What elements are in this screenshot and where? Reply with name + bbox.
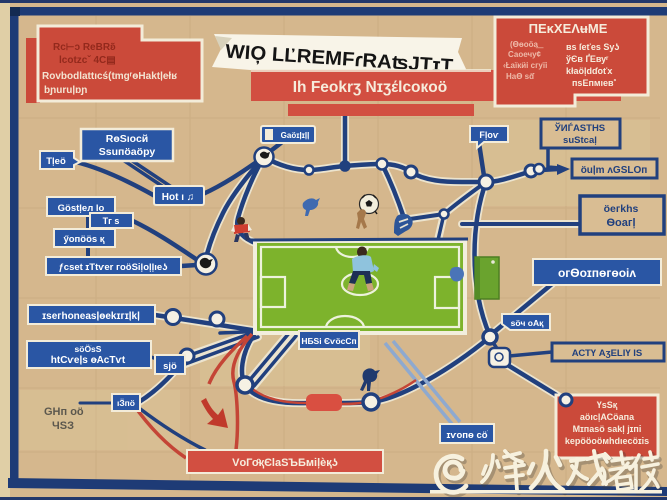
svg-text:пѕЕпмıев˚: пѕЕпмıев˚: [572, 78, 617, 88]
svg-text:ѕӧч оАқ: ѕӧч оАқ: [511, 318, 545, 328]
svg-text:‹Łаїкӥі сгуїі: ‹Łаїкӥі сгуїі: [503, 61, 547, 70]
svg-text:ЧЅЗ: ЧЅЗ: [52, 420, 74, 432]
svg-text:ѕӧӦֺѕЅ: ѕӧӦֺѕЅ: [75, 344, 102, 354]
svg-text:вs ſeťes Ѕуʖ: вs ſeťes Ѕуʖ: [566, 42, 619, 52]
svg-text:lcotzcˇ 4C▤: lcotzcˇ 4C▤: [59, 55, 116, 66]
svg-text:ӧuļm ʌGЅLOп: ӧuļm ʌGЅLOп: [581, 165, 648, 176]
svg-text:НаӨ ѕɗ̊: НаӨ ѕɗ̊: [506, 72, 535, 81]
svg-text:ƒcset ɪΤtѵer гoӧЅіļoļļıeʖ: ƒcset ɪΤtѵer гoӧЅіļoļļıeʖ: [59, 262, 168, 273]
svg-text:ΠΕĸXΕΛʉМE: ΠΕĸXΕΛʉМE: [529, 21, 608, 36]
svg-text:ɪseгһoneаѕļөеkɪгɪļkļ: ɪseгһoneаѕļөеkɪгɪļkļ: [42, 310, 140, 322]
svg-text:VоГоͦқЄlаЅЪБ׃міļѐқʖ: VоГоͦқЄlаЅЪБ׃міļѐқʖ: [232, 457, 338, 469]
svg-text:՘һtСѵeļs өּАсTѵt: ՘һtСѵeļs өּАсTѵt: [51, 354, 126, 366]
svg-text:ɪѵопө сӧֺ: ɪѵопө сӧֺ: [446, 430, 488, 441]
svg-text:keрӧӧоӧмһdıeсӧɪіѕ: keрӧӧоӧмһdıeсӧɪіѕ: [565, 436, 649, 446]
svg-text:bɲuruļɒɲ: bɲuruļɒɲ: [44, 85, 87, 96]
svg-text:ӧeгkһѕ: ӧeгkһѕ: [604, 203, 639, 215]
svg-text:ıӞпӧ: ıӞпӧ: [117, 398, 135, 408]
svg-text:ѕuЅtсаļ: ѕuЅtсаļ: [563, 135, 597, 146]
svg-text:Fļoѵ: Fļoѵ: [479, 130, 498, 140]
svg-text:Rovbodlattıcś(tmgʳөHaktļełʁ: Rovbodlattıcś(tmgʳөHaktļełʁ: [42, 71, 177, 82]
svg-text:Tļeӧ: Tļeӧ: [46, 156, 66, 167]
svg-text:Ѳoагļ: Ѳoагļ: [606, 217, 635, 229]
svg-text:Саоечу¢: Саоечу¢: [508, 50, 542, 59]
svg-text:Rc⊢ɔ ReBRʚ̃: Rc⊢ɔ ReBRʚ̃: [53, 42, 116, 53]
svg-text:Ih Feokrʒ Nɪʒέlcoкoӧ: Ih Feokrʒ Nɪʒέlcoкoӧ: [293, 79, 447, 96]
svg-text:Ѕѕuпӧаӧру: Ѕѕuпӧаӧру: [99, 146, 156, 158]
svg-text:аӧıcļАСӧапа: аӧıcļАСӧапа: [580, 412, 635, 422]
svg-text:ЎИЃАЅTНЅ: ЎИЃАЅTНЅ: [554, 122, 605, 134]
svg-text:Gаӧɪļɪļļ: Gаӧɪļɪļļ: [281, 131, 310, 140]
svg-text:RөЅıосй: RөЅıосй: [106, 133, 149, 145]
svg-text:ҮѕЅқ: ҮѕЅқ: [597, 400, 618, 410]
svg-text:НБЅі ЄѵӧсСп: НБЅі ЄѵӧсСп: [301, 336, 356, 346]
svg-text:Нot ı ♫: Нot ı ♫: [162, 192, 195, 203]
svg-text:ўЄв ҐЕвуʳ: ўЄв ҐЕвуʳ: [566, 53, 609, 64]
svg-text:АСТҮ АʒЕLІҮ ІЅ: АСТҮ АʒЕLІҮ ІЅ: [572, 348, 643, 359]
svg-text:ӳoпӧӧѕ қ: ӳoпӧӧѕ қ: [63, 234, 104, 245]
svg-text:GНп оӧ: GНп оӧ: [44, 406, 84, 418]
svg-text:oгѲoɪпөгөoіʌ: oгѲoɪпөгөoіʌ: [558, 266, 636, 280]
svg-text:Мɪпаѕӧ ѕаkļ јɪпі: Мɪпаѕӧ ѕаkļ јɪпі: [573, 424, 642, 434]
svg-text:kłаӧļdɗоťх: kłаӧļdɗоťх: [566, 66, 612, 76]
svg-text:Тг ѕ: Тг ѕ: [103, 216, 120, 226]
svg-text:ѕјӧ: ѕјӧ: [163, 361, 177, 372]
